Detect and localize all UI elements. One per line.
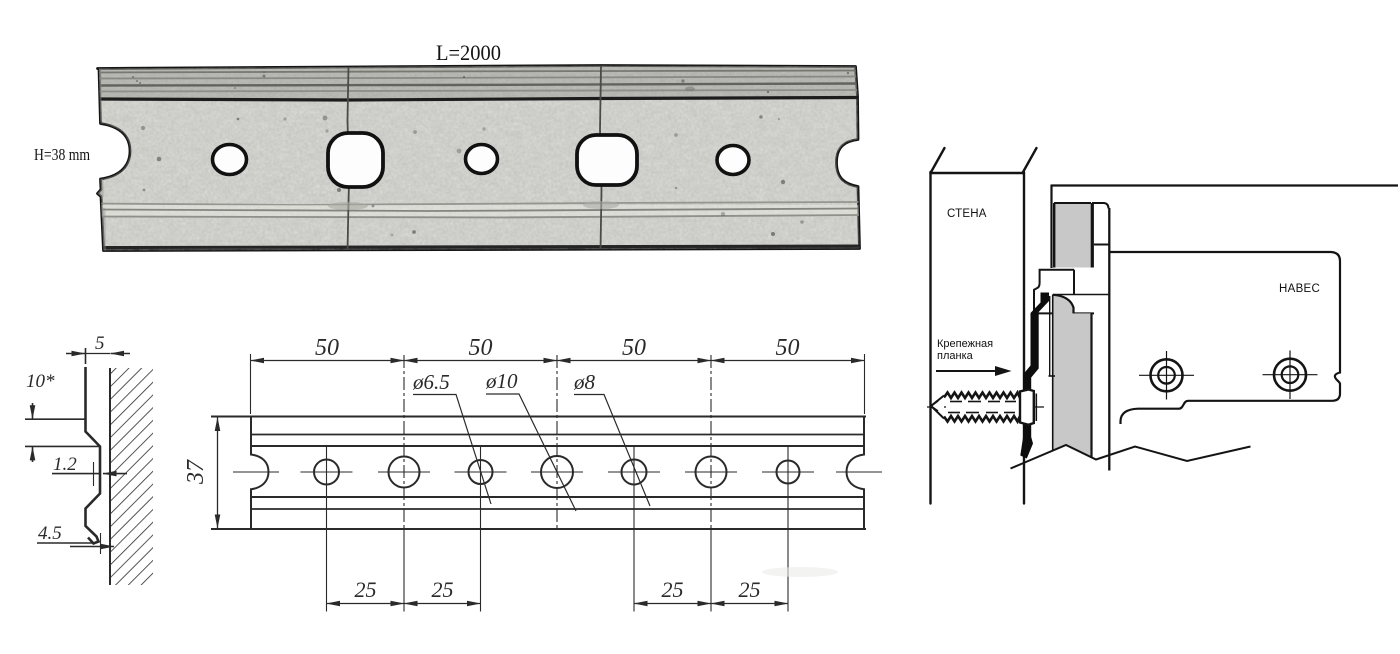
svg-text:5: 5 <box>95 333 105 354</box>
svg-text:25: 25 <box>739 577 761 602</box>
svg-text:ø10: ø10 <box>485 369 518 393</box>
svg-text:ø6.5: ø6.5 <box>412 370 450 394</box>
svg-text:СТЕНА: СТЕНА <box>947 208 987 220</box>
svg-text:25: 25 <box>355 577 377 602</box>
svg-text:50: 50 <box>622 335 646 361</box>
svg-text:1.2: 1.2 <box>53 454 77 475</box>
svg-text:25: 25 <box>432 577 454 602</box>
svg-text:25: 25 <box>662 577 684 602</box>
svg-text:Крепежная: Крепежная <box>937 338 993 350</box>
svg-text:H=38 mm: H=38 mm <box>34 145 90 164</box>
svg-text:планка: планка <box>937 350 974 362</box>
svg-text:L=2000: L=2000 <box>436 40 501 65</box>
svg-text:50: 50 <box>776 335 800 361</box>
svg-text:10*: 10* <box>26 371 55 392</box>
svg-text:ø8: ø8 <box>573 370 596 394</box>
svg-text:37: 37 <box>183 459 209 485</box>
svg-text:50: 50 <box>469 335 493 361</box>
svg-text:4.5: 4.5 <box>38 523 62 544</box>
svg-text:НАВЕС: НАВЕС <box>1279 283 1320 295</box>
svg-text:50: 50 <box>315 335 339 361</box>
